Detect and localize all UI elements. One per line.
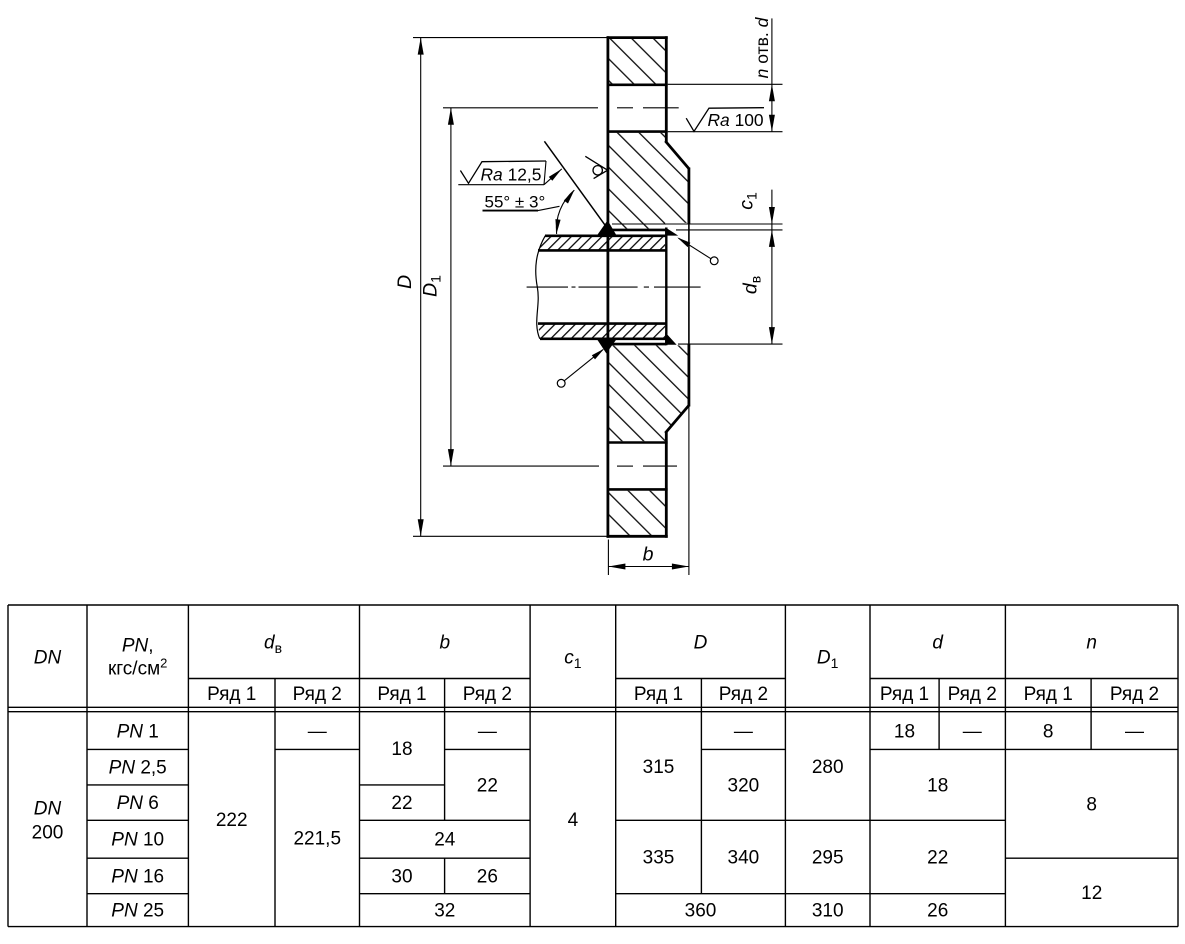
svg-text:n: n (1086, 633, 1097, 654)
svg-text:22: 22 (391, 793, 412, 814)
svg-text:—: — (308, 722, 327, 743)
svg-text:PN,: PN, (122, 636, 154, 657)
svg-text:310: 310 (812, 901, 844, 922)
svg-text:18: 18 (927, 775, 948, 796)
svg-text:Ряд 2: Ряд 2 (293, 684, 342, 705)
svg-text:PN 2,5: PN 2,5 (109, 758, 167, 779)
svg-text:Ra 12,5: Ra 12,5 (481, 165, 542, 185)
svg-text:PN 6: PN 6 (117, 793, 159, 814)
svg-text:PN 10: PN 10 (111, 830, 164, 851)
svg-text:222: 222 (216, 810, 248, 831)
svg-text:—: — (734, 722, 753, 743)
svg-text:Ряд 2: Ряд 2 (948, 684, 997, 705)
svg-text:PN 16: PN 16 (111, 866, 164, 887)
svg-text:55° ± 3°: 55° ± 3° (485, 193, 546, 212)
svg-text:Ряд 2: Ряд 2 (463, 684, 512, 705)
svg-text:335: 335 (643, 848, 675, 869)
svg-text:Ряд 2: Ряд 2 (1110, 684, 1159, 705)
svg-text:221,5: 221,5 (293, 829, 341, 850)
svg-text:D: D (694, 633, 708, 654)
svg-text:Ряд 1: Ряд 1 (377, 684, 426, 705)
svg-text:d: d (932, 633, 944, 654)
svg-text:200: 200 (32, 823, 64, 844)
svg-text:8: 8 (1086, 794, 1097, 815)
svg-text:22: 22 (477, 775, 498, 796)
svg-text:26: 26 (927, 901, 948, 922)
svg-text:22: 22 (927, 848, 948, 869)
svg-text:295: 295 (812, 848, 844, 869)
svg-text:340: 340 (728, 848, 760, 869)
svg-text:26: 26 (477, 866, 498, 887)
svg-text:—: — (963, 722, 982, 743)
svg-text:—: — (1125, 722, 1144, 743)
svg-text:Ряд 2: Ряд 2 (719, 684, 768, 705)
svg-text:360: 360 (685, 901, 717, 922)
svg-text:8: 8 (1043, 722, 1054, 743)
svg-text:Ряд 1: Ряд 1 (880, 684, 929, 705)
svg-text:DN: DN (34, 799, 62, 820)
svg-text:Ra 100: Ra 100 (708, 110, 764, 130)
svg-text:320: 320 (728, 775, 760, 796)
svg-text:n отв. d: n отв. d (752, 16, 772, 78)
svg-text:315: 315 (643, 757, 675, 778)
svg-text:32: 32 (434, 901, 455, 922)
svg-text:18: 18 (391, 739, 412, 760)
svg-text:4: 4 (568, 810, 579, 831)
svg-text:PN 25: PN 25 (111, 901, 164, 922)
svg-text:18: 18 (894, 722, 915, 743)
svg-text:D: D (394, 275, 416, 289)
svg-text:24: 24 (434, 830, 456, 851)
svg-text:Ряд 1: Ряд 1 (207, 684, 256, 705)
svg-text:30: 30 (391, 866, 412, 887)
svg-text:—: — (478, 722, 497, 743)
svg-text:b: b (643, 544, 654, 566)
svg-text:b: b (440, 633, 451, 654)
svg-text:кгс/см2: кгс/см2 (108, 656, 167, 680)
svg-text:DN: DN (34, 648, 62, 669)
svg-text:PN 1: PN 1 (117, 722, 159, 743)
svg-text:280: 280 (812, 757, 844, 778)
svg-text:Ряд 1: Ряд 1 (1024, 684, 1073, 705)
svg-text:12: 12 (1081, 883, 1102, 904)
svg-text:Ряд 1: Ряд 1 (634, 684, 683, 705)
